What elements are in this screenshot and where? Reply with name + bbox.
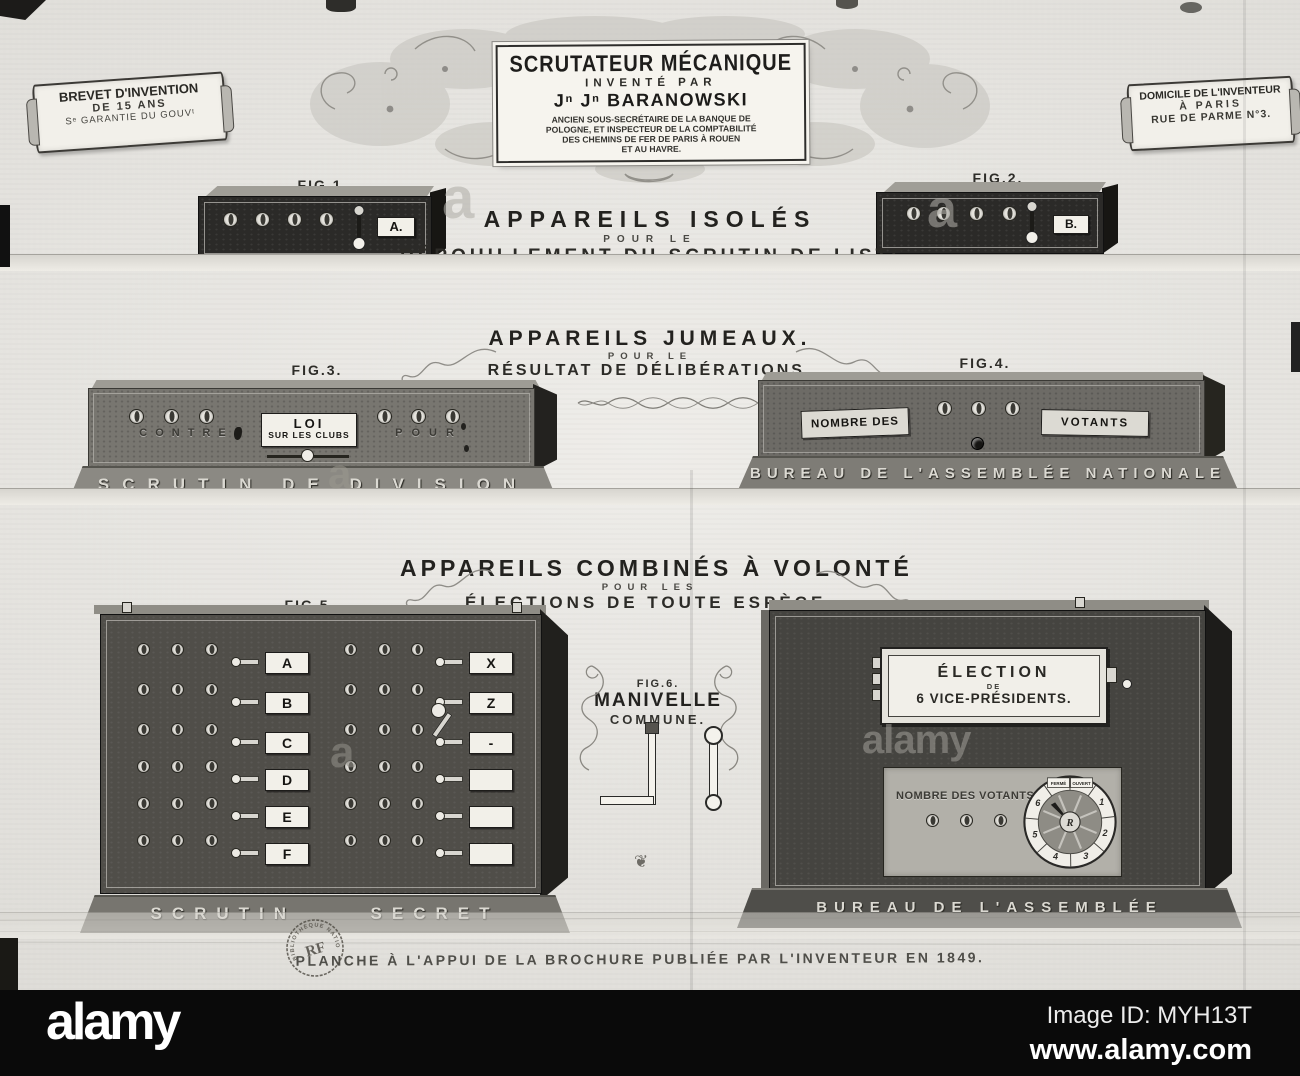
stamp-center-text: RF — [304, 939, 328, 960]
crank-rod-top-ring — [704, 726, 723, 745]
counter-dial — [378, 683, 391, 696]
alamy-url-text: www.alamy.com — [1030, 1034, 1252, 1067]
title-cartouche: SCRUTATEUR MÉCANIQUE INVENTÉ PAR Jⁿ Jⁿ B… — [496, 43, 807, 163]
fig3-label: FIG.3. — [262, 362, 372, 378]
scan-blot — [464, 445, 469, 452]
plaque-tab — [1106, 667, 1117, 683]
counter-dial — [199, 409, 214, 424]
row-crank — [443, 659, 463, 665]
crank-rod — [709, 738, 718, 802]
loi-line2: SUR LES CLUBS — [262, 431, 356, 440]
fig2-machine: B. — [876, 182, 1124, 262]
selector-knob — [301, 449, 314, 462]
dial-ouvert: OUVERT — [1072, 781, 1091, 786]
counter-dial — [411, 643, 424, 656]
candidate-plate: F — [265, 843, 309, 865]
counter-dial — [1002, 206, 1017, 221]
fig4-machine: NOMBRE DES VOTANTS BUREAU DE L'ASSEMBLÉE… — [750, 372, 1235, 492]
dial-number: 3 — [1083, 851, 1088, 861]
scan-blot — [234, 427, 242, 440]
candidate-plate — [469, 843, 513, 865]
fig4-side-face — [1203, 375, 1225, 463]
counter-dial — [1005, 401, 1020, 416]
address-banner: DOMICILE DE L'INVENTEUR À PARIS RUE DE P… — [1126, 76, 1295, 152]
fig7-left-edge — [761, 610, 769, 890]
candidate-plate — [469, 806, 513, 828]
fig3-plaque: LOI SUR LES CLUBS — [261, 413, 357, 447]
counter-dial — [129, 409, 144, 424]
fig4-label: FIG.4. — [930, 355, 1040, 371]
counter-dial — [377, 409, 392, 424]
counter-dial — [937, 401, 952, 416]
shelf-line-1 — [0, 254, 1300, 271]
fig2-side-face — [1102, 184, 1118, 254]
counter-dial — [411, 723, 424, 736]
fig7-top-face — [769, 600, 1209, 610]
counter-dial — [411, 409, 426, 424]
counter-dial — [205, 760, 218, 773]
counter-dial — [223, 212, 238, 227]
election-line3: 6 VICE-PRÉSIDENTS. — [889, 691, 1099, 706]
vote-lever — [1030, 207, 1034, 235]
crank-knob — [971, 437, 984, 450]
row-crank — [239, 739, 259, 745]
candidate-plate: A — [265, 652, 309, 674]
fig5-row: A X — [101, 639, 541, 679]
counter-dial — [171, 683, 184, 696]
stock-photo-watermark-bar: alamy Image ID: MYH13T www.alamy.com — [0, 990, 1300, 1076]
dial-number: 1 — [1099, 797, 1104, 807]
plaque-tab — [872, 673, 883, 685]
plaque-knob — [1122, 679, 1132, 689]
fig4-plaque-left: NOMBRE DES — [801, 407, 910, 439]
candidate-plate: E — [265, 806, 309, 828]
fig5-row: D — [101, 756, 541, 796]
row-crank — [239, 776, 259, 782]
counter-dial — [344, 760, 357, 773]
section1-pour: POUR LE — [400, 234, 900, 245]
fig3-side-face — [533, 384, 557, 472]
ornament-glyph: ❦ — [634, 852, 648, 872]
fig7-election-plaque-inner: ÉLECTION DE 6 VICE-PRÉSIDENTS. — [888, 655, 1100, 717]
counter-dial — [378, 723, 391, 736]
counter-dial — [137, 723, 150, 736]
counter-dial — [344, 643, 357, 656]
plaque-tab — [872, 657, 883, 669]
counter-dial — [205, 683, 218, 696]
row-crank — [443, 739, 463, 745]
shelf-line-2 — [0, 488, 1300, 505]
fig4-base-text: BUREAU DE L'ASSEMBLÉE NATIONALE — [750, 465, 1226, 482]
counter-dial — [411, 797, 424, 810]
row-crank — [443, 699, 463, 705]
counter-dial — [137, 643, 150, 656]
counter-dial — [171, 760, 184, 773]
crank-rod-bottom-ring — [705, 794, 722, 811]
counter-dial — [378, 760, 391, 773]
scan-blot — [461, 423, 466, 430]
vote-lever — [357, 211, 361, 241]
counter-dial — [994, 814, 1007, 827]
counter-dial — [344, 834, 357, 847]
counter-dial — [137, 760, 150, 773]
fig7-side-face — [1204, 605, 1232, 897]
z-crank-arm — [432, 712, 453, 738]
fig4-plaque-right: VOTANTS — [1041, 409, 1149, 437]
z-crank-knob — [431, 703, 446, 718]
fig7-votants-panel: NOMBRE DES VOTANTS — [883, 767, 1122, 877]
selector-lever — [267, 455, 349, 458]
ballot-clock-dial: FERMÉ OUVERT 1 2 3 4 5 6 R — [1022, 774, 1118, 870]
contre-label: CONTRE — [119, 427, 254, 439]
crank-handle-cap — [645, 722, 659, 734]
counter-dial — [378, 797, 391, 810]
section1-title: APPAREILS ISOLÉS — [400, 206, 900, 233]
counter-dial — [378, 643, 391, 656]
shelf-line-3 — [0, 912, 1300, 939]
crank-handle-foot — [600, 796, 654, 805]
counter-dial — [936, 206, 951, 221]
counter-dial — [171, 723, 184, 736]
fig7-machine: ÉLECTION DE 6 VICE-PRÉSIDENTS. NOMBRE DE… — [745, 600, 1245, 935]
dial-number: 4 — [1052, 851, 1058, 861]
fig5-row: B Z — [101, 679, 541, 719]
fig5-front-face: A X B Z — [100, 614, 542, 894]
counter-dial — [205, 834, 218, 847]
candidate-plate: - — [469, 732, 513, 754]
loi-line1: LOI — [262, 416, 356, 431]
counter-dial — [344, 723, 357, 736]
counter-dial — [137, 797, 150, 810]
dial-number: 5 — [1032, 829, 1038, 839]
election-line1: ÉLECTION — [889, 664, 1099, 682]
election-line2: DE — [889, 682, 1099, 691]
counter-dial — [971, 401, 986, 416]
inventor-name: Jⁿ Jⁿ BARANOWSKI — [498, 89, 804, 112]
counter-dial — [137, 683, 150, 696]
pour-label: POUR — [374, 427, 484, 439]
fig3-front-face: CONTRE LOI SUR LES CLUBS POUR — [88, 388, 535, 468]
candidate-plate — [469, 769, 513, 791]
fig5-row: C - — [101, 719, 541, 759]
counter-dial — [960, 814, 973, 827]
candidate-plate: Z — [469, 692, 513, 714]
counter-dial — [319, 212, 334, 227]
top-handle — [512, 602, 522, 613]
counter-dial — [205, 723, 218, 736]
crank-handle-vertical — [648, 727, 656, 805]
top-handle — [1075, 597, 1085, 608]
counter-dial — [164, 409, 179, 424]
fig4-top-face — [762, 372, 1207, 380]
fig2-top-face — [884, 182, 1106, 192]
candidate-plate: X — [469, 652, 513, 674]
fig7-election-plaque: ÉLECTION DE 6 VICE-PRÉSIDENTS. — [880, 647, 1108, 725]
dial-hub-glyph: R — [1065, 818, 1073, 829]
counter-dial — [445, 409, 460, 424]
watermark-info: Image ID: MYH13T www.alamy.com — [1030, 1002, 1252, 1067]
candidate-plate: C — [265, 732, 309, 754]
counter-dial — [906, 206, 921, 221]
plaque-tab — [872, 689, 883, 701]
counter-dial — [926, 814, 939, 827]
counter-dial — [969, 206, 984, 221]
scanned-plate-screenshot: SCRUTATEUR MÉCANIQUE INVENTÉ PAR Jⁿ Jⁿ B… — [0, 0, 1300, 1076]
fig5-machine: A X B Z — [80, 605, 575, 940]
dial-ferme: FERMÉ — [1051, 779, 1066, 786]
row-crank — [239, 813, 259, 819]
fig2-front-face: B. — [876, 192, 1104, 254]
candidate-plate: B — [265, 692, 309, 714]
dial-number: 6 — [1035, 798, 1041, 808]
row-crank — [443, 850, 463, 856]
row-crank — [239, 659, 259, 665]
counter-dial — [171, 797, 184, 810]
counter-dial — [137, 834, 150, 847]
fig1-top-face — [206, 186, 434, 196]
counter-dial — [344, 797, 357, 810]
patent-banner: BREVET D'INVENTION DE 15 ANS Sᵉ GARANTIE… — [32, 71, 228, 153]
counter-dial — [411, 683, 424, 696]
fig3-machine: CONTRE LOI SUR LES CLUBS POUR SCRUTIN DE… — [88, 380, 568, 502]
row-crank — [239, 699, 259, 705]
dial-number: 2 — [1102, 828, 1108, 838]
votants-panel-label: NOMBRE DES VOTANTS — [896, 790, 1034, 802]
candidate-plate: D — [265, 769, 309, 791]
counter-dial — [411, 834, 424, 847]
counter-dial — [344, 683, 357, 696]
counter-dial — [171, 643, 184, 656]
manivelle-curl-left — [562, 660, 606, 800]
plate-title: SCRUTATEUR MÉCANIQUE — [498, 50, 804, 79]
fig3-top-face — [92, 380, 540, 388]
top-handle — [122, 602, 132, 613]
row-crank — [443, 813, 463, 819]
alamy-logo: alamy — [46, 992, 178, 1052]
inventor-credentials-4: ET AU HAVRE. — [498, 143, 804, 155]
fig1-front-face: A. — [198, 196, 432, 260]
counter-dial — [287, 212, 302, 227]
counter-dial — [255, 212, 270, 227]
counter-dial — [205, 643, 218, 656]
fig2-plate-b: B. — [1053, 215, 1089, 234]
image-id-text: Image ID: MYH13T — [1030, 1002, 1252, 1030]
fig5-top-face — [94, 605, 546, 614]
counter-dial — [411, 760, 424, 773]
counter-dial — [171, 834, 184, 847]
fig4-base: BUREAU DE L'ASSEMBLÉE NATIONALE — [738, 456, 1238, 490]
fig5-row: E — [101, 793, 541, 833]
fig5-row: F — [101, 830, 541, 870]
counter-dial — [378, 834, 391, 847]
fig7-front-face: ÉLECTION DE 6 VICE-PRÉSIDENTS. NOMBRE DE… — [769, 610, 1206, 892]
fig4-front-face: NOMBRE DES VOTANTS — [758, 380, 1205, 458]
counter-dial — [205, 797, 218, 810]
row-crank — [239, 850, 259, 856]
row-crank — [443, 776, 463, 782]
